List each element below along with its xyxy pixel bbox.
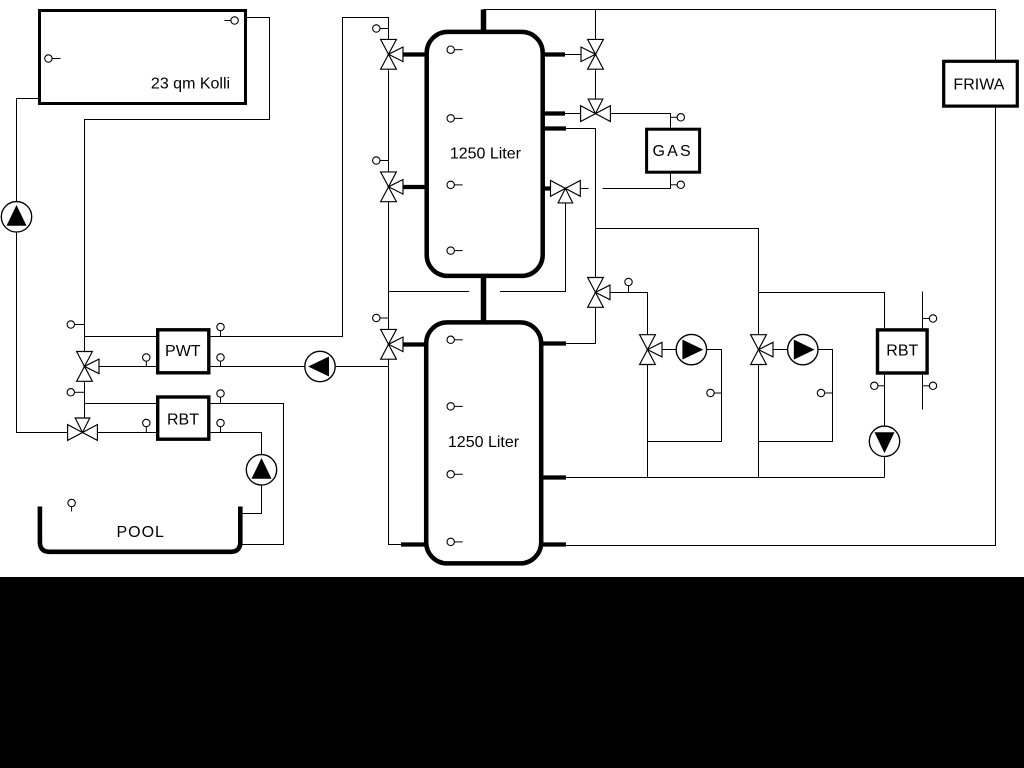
svg-text:POOL: POOL bbox=[116, 524, 164, 541]
svg-text:23 qm Kolli: 23 qm Kolli bbox=[151, 76, 230, 93]
svg-text:GAS: GAS bbox=[653, 143, 693, 160]
svg-text:RBT: RBT bbox=[886, 343, 918, 360]
svg-text:1250 Liter: 1250 Liter bbox=[448, 434, 520, 451]
svg-text:PWT: PWT bbox=[165, 343, 201, 360]
svg-text:FRIWA: FRIWA bbox=[953, 77, 1004, 94]
svg-text:RBT: RBT bbox=[167, 412, 199, 429]
svg-text:1250 Liter: 1250 Liter bbox=[450, 145, 522, 162]
